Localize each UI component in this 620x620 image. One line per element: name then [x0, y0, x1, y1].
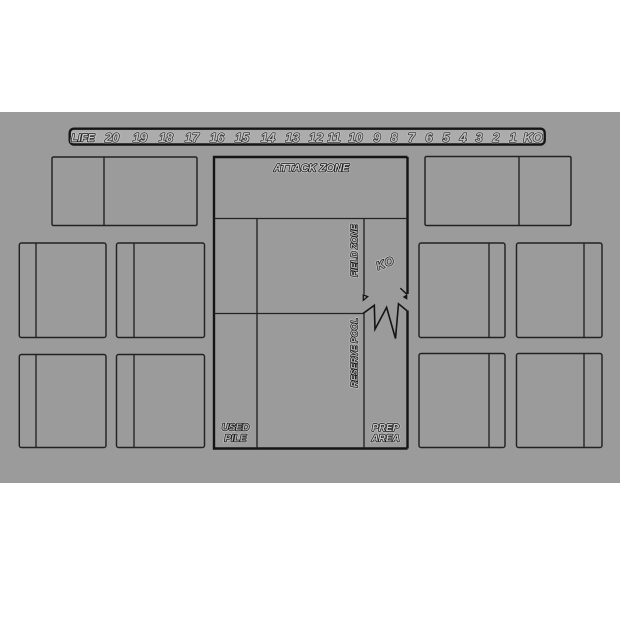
svg-text:15: 15	[235, 130, 250, 145]
svg-text:17: 17	[185, 130, 200, 145]
svg-text:KO: KO	[523, 130, 543, 145]
svg-text:6: 6	[425, 130, 433, 145]
svg-text:14: 14	[261, 130, 276, 145]
svg-text:RESERVE POOL: RESERVE POOL	[350, 318, 360, 387]
svg-text:19: 19	[133, 130, 148, 145]
svg-text:7: 7	[408, 130, 416, 145]
svg-text:5: 5	[442, 130, 450, 145]
svg-text:FIELD ZONE: FIELD ZONE	[350, 223, 360, 276]
svg-text:9: 9	[373, 130, 381, 145]
svg-text:13: 13	[285, 130, 300, 145]
svg-text:AREA: AREA	[370, 434, 399, 445]
svg-text:USED: USED	[222, 423, 250, 434]
svg-text:20: 20	[104, 130, 120, 145]
svg-text:11: 11	[327, 130, 341, 145]
svg-text:4: 4	[458, 130, 467, 145]
svg-text:PREP: PREP	[372, 423, 400, 434]
svg-text:ATTACK ZONE: ATTACK ZONE	[273, 163, 351, 175]
svg-text:10: 10	[348, 130, 363, 145]
svg-text:PILE: PILE	[224, 434, 247, 445]
svg-text:18: 18	[159, 130, 174, 145]
svg-text:3: 3	[475, 130, 483, 145]
svg-text:12: 12	[309, 130, 324, 145]
svg-text:LIFE: LIFE	[71, 133, 95, 145]
svg-text:16: 16	[210, 130, 225, 145]
svg-text:2: 2	[491, 130, 500, 145]
svg-text:8: 8	[390, 130, 398, 145]
svg-text:1: 1	[509, 130, 516, 145]
